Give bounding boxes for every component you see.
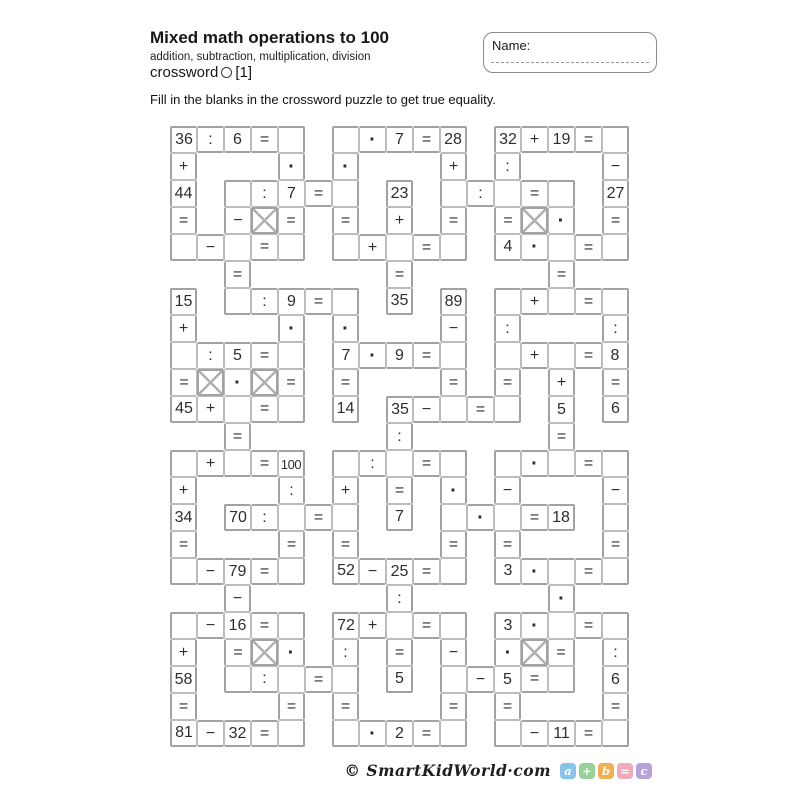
footer: © SmartKidWorld·com a+b=c <box>170 761 652 780</box>
operator-cell: = <box>386 477 413 504</box>
blank-cell[interactable] <box>440 720 467 747</box>
operator-cell: + <box>521 342 548 369</box>
blank-cell[interactable] <box>278 504 305 531</box>
given-number-cell: 79 <box>224 558 251 585</box>
blank-cell[interactable] <box>548 666 575 693</box>
operator-cell: − <box>197 720 224 747</box>
operator-cell: · <box>359 342 386 369</box>
given-number-cell: 6 <box>602 396 629 423</box>
operator-cell: − <box>602 477 629 504</box>
operator-cell: + <box>170 477 197 504</box>
blank-cell[interactable] <box>224 234 251 261</box>
blank-cell[interactable] <box>440 558 467 585</box>
operator-cell: : <box>251 504 278 531</box>
blank-cell[interactable] <box>548 612 575 639</box>
given-number-cell: 32 <box>494 126 521 153</box>
blank-cell[interactable] <box>548 288 575 315</box>
given-number-cell: 28 <box>440 126 467 153</box>
operator-cell: : <box>359 450 386 477</box>
operator-cell: · <box>440 477 467 504</box>
operator-cell: = <box>494 693 521 720</box>
operator-cell: : <box>602 639 629 666</box>
operator-cell: = <box>575 720 602 747</box>
blank-cell[interactable] <box>440 342 467 369</box>
operator-cell: − <box>197 558 224 585</box>
given-number-cell: 72 <box>332 612 359 639</box>
blocked-cell <box>521 207 548 234</box>
operator-cell: = <box>494 369 521 396</box>
operator-cell: + <box>197 396 224 423</box>
operator-cell: = <box>170 207 197 234</box>
blank-cell[interactable] <box>332 234 359 261</box>
given-number-cell: 3 <box>494 558 521 585</box>
operator-cell: = <box>602 369 629 396</box>
blank-cell[interactable] <box>332 504 359 531</box>
operator-cell: − <box>440 315 467 342</box>
blank-cell[interactable] <box>602 720 629 747</box>
operator-cell: = <box>413 720 440 747</box>
given-number-cell: 9 <box>386 342 413 369</box>
operator-cell: = <box>575 558 602 585</box>
operator-cell: − <box>224 207 251 234</box>
given-number-cell: 52 <box>332 558 359 585</box>
blank-cell[interactable] <box>548 180 575 207</box>
given-number-cell: 6 <box>602 666 629 693</box>
blank-cell[interactable] <box>224 666 251 693</box>
operator-cell: = <box>332 369 359 396</box>
given-number-cell: 11 <box>548 720 575 747</box>
operator-cell: : <box>197 342 224 369</box>
given-number-cell: 5 <box>494 666 521 693</box>
operator-cell: = <box>332 693 359 720</box>
operator-cell: = <box>251 450 278 477</box>
operator-cell: − <box>440 639 467 666</box>
blank-cell[interactable] <box>332 666 359 693</box>
operator-cell: + <box>170 639 197 666</box>
blank-cell[interactable] <box>224 180 251 207</box>
operator-cell: · <box>332 315 359 342</box>
operator-cell: = <box>386 639 413 666</box>
blank-cell[interactable] <box>602 612 629 639</box>
blank-cell[interactable] <box>386 612 413 639</box>
given-number-cell: 23 <box>386 180 413 207</box>
operator-cell: = <box>170 369 197 396</box>
operator-cell: − <box>467 666 494 693</box>
operator-cell: − <box>197 612 224 639</box>
operator-cell: + <box>359 234 386 261</box>
given-number-cell: 70 <box>224 504 251 531</box>
operator-cell: : <box>386 423 413 450</box>
blank-cell[interactable] <box>170 450 197 477</box>
blank-cell[interactable] <box>602 450 629 477</box>
worksheet-page: Mixed math operations to 100 addition, s… <box>0 0 800 800</box>
operator-cell: = <box>278 207 305 234</box>
blank-cell[interactable] <box>224 450 251 477</box>
operator-cell: = <box>251 342 278 369</box>
given-number-cell: 2 <box>386 720 413 747</box>
operator-cell: + <box>548 369 575 396</box>
given-number-cell: 44 <box>170 180 197 207</box>
blank-cell[interactable] <box>278 720 305 747</box>
operator-cell: : <box>278 477 305 504</box>
given-number-cell: 81 <box>170 720 197 747</box>
crossword-grid: 36:6=·7=2832+19=+··+:−44:7=23:=27=−==+==… <box>170 126 629 747</box>
blank-cell[interactable] <box>278 234 305 261</box>
blank-cell[interactable] <box>278 396 305 423</box>
operator-cell: : <box>494 153 521 180</box>
blank-cell[interactable] <box>278 558 305 585</box>
given-number-cell: 18 <box>548 504 575 531</box>
operator-cell: = <box>494 207 521 234</box>
operator-cell: : <box>386 585 413 612</box>
operator-cell: = <box>413 558 440 585</box>
operator-cell: + <box>170 153 197 180</box>
badge-plus: + <box>579 763 595 779</box>
blank-cell[interactable] <box>332 126 359 153</box>
operator-cell: = <box>170 531 197 558</box>
given-number-cell: 34 <box>170 504 197 531</box>
blank-cell[interactable] <box>602 558 629 585</box>
blank-cell[interactable] <box>332 720 359 747</box>
operator-cell: = <box>575 126 602 153</box>
operator-cell: = <box>278 531 305 558</box>
blocked-cell <box>251 369 278 396</box>
operator-cell: + <box>521 126 548 153</box>
badge-c: c <box>636 763 652 779</box>
operator-cell: · <box>521 450 548 477</box>
given-number-cell: 7 <box>386 126 413 153</box>
operator-cell: − <box>602 153 629 180</box>
operator-cell: : <box>251 288 278 315</box>
operator-cell: = <box>575 234 602 261</box>
operator-cell: − <box>224 585 251 612</box>
operator-cell: : <box>602 315 629 342</box>
given-number-cell: 5 <box>548 396 575 423</box>
operator-cell: · <box>332 153 359 180</box>
operator-cell: · <box>521 612 548 639</box>
given-number-cell: 35 <box>386 288 413 315</box>
blank-cell[interactable] <box>170 612 197 639</box>
operator-cell: = <box>278 369 305 396</box>
operator-cell: = <box>440 369 467 396</box>
blank-cell[interactable] <box>386 450 413 477</box>
operator-cell: − <box>413 396 440 423</box>
operator-cell: : <box>494 315 521 342</box>
given-number-cell: 15 <box>170 288 197 315</box>
operator-cell: = <box>548 423 575 450</box>
brand-logo: a+b=c <box>560 763 652 779</box>
operator-cell: = <box>170 693 197 720</box>
given-number-cell: 7 <box>386 504 413 531</box>
blank-cell[interactable] <box>278 612 305 639</box>
operator-cell: = <box>413 450 440 477</box>
operator-cell: = <box>440 693 467 720</box>
operator-cell: − <box>521 720 548 747</box>
blank-cell[interactable] <box>494 342 521 369</box>
blank-cell[interactable] <box>602 234 629 261</box>
operator-cell: · <box>521 558 548 585</box>
given-number-cell: 89 <box>440 288 467 315</box>
blank-cell[interactable] <box>440 612 467 639</box>
given-number-cell: 32 <box>224 720 251 747</box>
operator-cell: + <box>332 477 359 504</box>
given-number-cell: 58 <box>170 666 197 693</box>
operator-cell: = <box>251 558 278 585</box>
operator-cell: · <box>359 126 386 153</box>
operator-cell: = <box>413 342 440 369</box>
badge-equals: = <box>617 763 633 779</box>
operator-cell: − <box>494 477 521 504</box>
operator-cell: · <box>494 639 521 666</box>
operator-cell: = <box>278 693 305 720</box>
operator-cell: + <box>386 207 413 234</box>
operator-cell: = <box>251 396 278 423</box>
given-number-cell: 5 <box>224 342 251 369</box>
operator-cell: · <box>278 153 305 180</box>
operator-cell: = <box>413 612 440 639</box>
name-box: Name: <box>483 32 657 73</box>
operator-cell: + <box>197 450 224 477</box>
given-number-cell: 16 <box>224 612 251 639</box>
given-number-cell: 100 <box>278 450 305 477</box>
operator-cell: + <box>440 153 467 180</box>
operator-cell: = <box>305 666 332 693</box>
operator-cell: = <box>548 639 575 666</box>
given-number-cell: 6 <box>224 126 251 153</box>
given-number-cell: 7 <box>332 342 359 369</box>
blocked-cell <box>197 369 224 396</box>
operator-cell: = <box>251 612 278 639</box>
operator-cell: = <box>386 261 413 288</box>
name-write-line[interactable] <box>491 62 649 63</box>
blank-cell[interactable] <box>494 720 521 747</box>
circle-icon <box>221 67 232 78</box>
blank-cell[interactable] <box>170 558 197 585</box>
operator-cell: = <box>467 396 494 423</box>
blank-cell[interactable] <box>548 450 575 477</box>
brand-credit: © SmartKidWorld·com <box>344 761 551 780</box>
operator-cell: = <box>251 126 278 153</box>
blank-cell[interactable] <box>494 288 521 315</box>
operator-cell: = <box>413 234 440 261</box>
operator-cell: · <box>359 720 386 747</box>
operator-cell: = <box>224 261 251 288</box>
page-subtitle: addition, subtraction, multiplication, d… <box>150 51 371 63</box>
blank-cell[interactable] <box>332 288 359 315</box>
blank-cell[interactable] <box>440 450 467 477</box>
page-title: Mixed math operations to 100 <box>150 28 389 48</box>
operator-cell: = <box>521 504 548 531</box>
operator-cell: = <box>305 180 332 207</box>
blank-cell[interactable] <box>548 342 575 369</box>
operator-cell: = <box>602 207 629 234</box>
operator-cell: = <box>251 720 278 747</box>
blocked-cell <box>251 639 278 666</box>
blank-cell[interactable] <box>440 666 467 693</box>
operator-cell: · <box>548 585 575 612</box>
operator-cell: − <box>197 234 224 261</box>
given-number-cell: 14 <box>332 396 359 423</box>
blank-cell[interactable] <box>548 234 575 261</box>
operator-cell: + <box>359 612 386 639</box>
name-label: Name: <box>492 38 530 53</box>
blocked-cell <box>251 207 278 234</box>
given-number-cell: 27 <box>602 180 629 207</box>
operator-cell: + <box>521 288 548 315</box>
badge-b: b <box>598 763 614 779</box>
given-number-cell: 36 <box>170 126 197 153</box>
operator-cell: = <box>575 450 602 477</box>
blank-cell[interactable] <box>170 342 197 369</box>
given-number-cell: 19 <box>548 126 575 153</box>
operator-cell: : <box>251 180 278 207</box>
operator-cell: + <box>170 315 197 342</box>
operator-cell: = <box>521 180 548 207</box>
blank-cell[interactable] <box>494 396 521 423</box>
operator-cell: = <box>602 531 629 558</box>
blank-cell[interactable] <box>548 558 575 585</box>
operator-cell: · <box>521 234 548 261</box>
operator-cell: : <box>251 666 278 693</box>
operator-cell: = <box>440 531 467 558</box>
operator-cell: · <box>467 504 494 531</box>
series-label: crossword[1] <box>150 64 252 81</box>
operator-cell: = <box>548 261 575 288</box>
blank-cell[interactable] <box>440 234 467 261</box>
badge-a: a <box>560 763 576 779</box>
given-number-cell: 45 <box>170 396 197 423</box>
blank-cell[interactable] <box>278 126 305 153</box>
blank-cell[interactable] <box>386 234 413 261</box>
operator-cell: = <box>575 612 602 639</box>
instruction-text: Fill in the blanks in the crossword puzz… <box>150 92 496 107</box>
blank-cell[interactable] <box>224 288 251 315</box>
operator-cell: = <box>521 666 548 693</box>
operator-cell: = <box>224 423 251 450</box>
blank-cell[interactable] <box>602 504 629 531</box>
operator-cell: = <box>305 504 332 531</box>
operator-cell: : <box>197 126 224 153</box>
blank-cell[interactable] <box>494 180 521 207</box>
given-number-cell: 25 <box>386 558 413 585</box>
given-number-cell: 8 <box>602 342 629 369</box>
blank-cell[interactable] <box>332 180 359 207</box>
operator-cell: · <box>548 207 575 234</box>
series-prefix: crossword <box>150 64 218 81</box>
blank-cell[interactable] <box>494 504 521 531</box>
blank-cell[interactable] <box>494 450 521 477</box>
operator-cell: = <box>575 288 602 315</box>
blank-cell[interactable] <box>440 396 467 423</box>
blank-cell[interactable] <box>332 450 359 477</box>
given-number-cell: 35 <box>386 396 413 423</box>
operator-cell: − <box>359 558 386 585</box>
blank-cell[interactable] <box>440 504 467 531</box>
blank-cell[interactable] <box>602 288 629 315</box>
operator-cell: = <box>251 234 278 261</box>
blank-cell[interactable] <box>278 666 305 693</box>
series-suffix: [1] <box>235 64 252 81</box>
given-number-cell: 9 <box>278 288 305 315</box>
operator-cell: = <box>332 531 359 558</box>
operator-cell: · <box>278 315 305 342</box>
blank-cell[interactable] <box>278 342 305 369</box>
blank-cell[interactable] <box>602 126 629 153</box>
blank-cell[interactable] <box>170 234 197 261</box>
operator-cell: · <box>278 639 305 666</box>
operator-cell: = <box>602 693 629 720</box>
given-number-cell: 4 <box>494 234 521 261</box>
given-number-cell: 3 <box>494 612 521 639</box>
operator-cell: = <box>332 207 359 234</box>
blank-cell[interactable] <box>440 180 467 207</box>
operator-cell: : <box>332 639 359 666</box>
blank-cell[interactable] <box>224 396 251 423</box>
operator-cell: = <box>305 288 332 315</box>
blocked-cell <box>521 639 548 666</box>
operator-cell: : <box>467 180 494 207</box>
operator-cell: = <box>224 639 251 666</box>
operator-cell: = <box>494 531 521 558</box>
operator-cell: = <box>575 342 602 369</box>
operator-cell: · <box>224 369 251 396</box>
operator-cell: = <box>440 207 467 234</box>
operator-cell: = <box>413 126 440 153</box>
given-number-cell: 5 <box>386 666 413 693</box>
given-number-cell: 7 <box>278 180 305 207</box>
